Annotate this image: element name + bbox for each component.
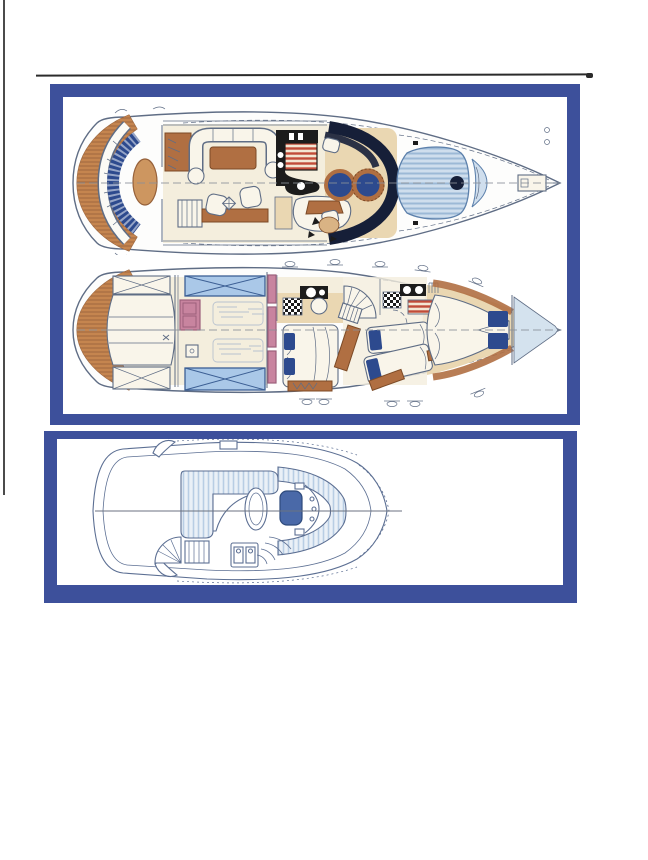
flybridge-wetbar bbox=[231, 543, 258, 567]
scan-left-edge-line bbox=[3, 0, 5, 495]
hanging-locker bbox=[288, 381, 332, 391]
galley bbox=[276, 130, 320, 195]
midship-cabin bbox=[283, 325, 338, 391]
companionway-steps bbox=[178, 200, 202, 227]
upper-plans-panel bbox=[50, 84, 580, 425]
coffee-table bbox=[210, 147, 256, 169]
systems-cabinet bbox=[180, 300, 200, 330]
scan-top-rule-end bbox=[586, 73, 593, 78]
galley-floor bbox=[285, 143, 317, 170]
flybridge-plan-figure bbox=[57, 439, 563, 585]
upper-panel-paper bbox=[63, 97, 567, 414]
helm-seat bbox=[280, 491, 302, 525]
salon-bar-cabinet bbox=[165, 133, 191, 171]
scan-top-rule bbox=[36, 73, 592, 76]
flybridge-panel-paper bbox=[57, 439, 563, 585]
cockpit-table bbox=[133, 159, 157, 205]
salon-dinette bbox=[275, 196, 351, 231]
scanned-page bbox=[0, 0, 648, 860]
flybridge-table bbox=[245, 488, 267, 530]
lower-deck-plan-figure bbox=[63, 255, 567, 414]
main-deck-plan-figure bbox=[63, 97, 567, 255]
flybridge-panel bbox=[44, 431, 577, 603]
